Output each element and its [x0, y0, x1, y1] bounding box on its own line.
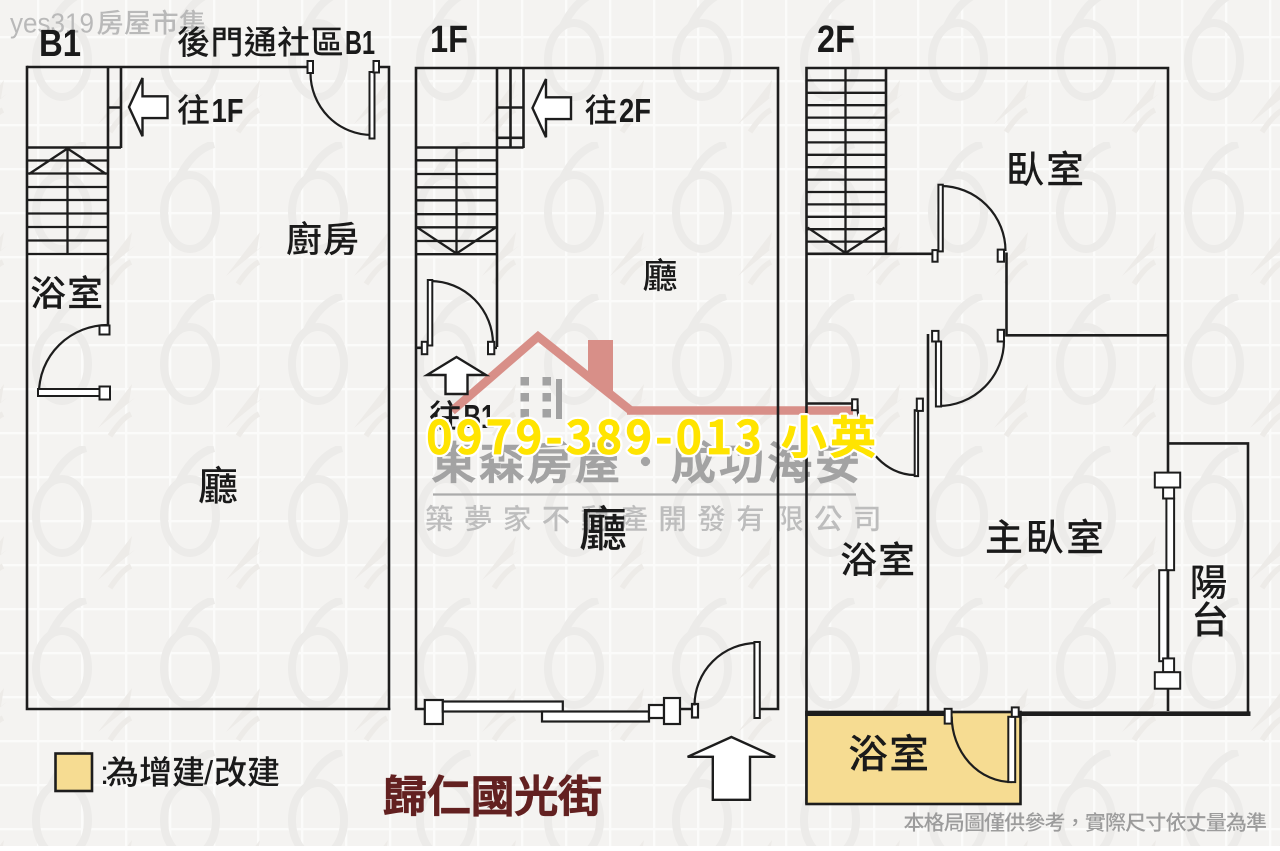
svg-text:1F: 1F — [212, 92, 244, 129]
svg-text:/: / — [204, 754, 214, 791]
svg-text::: : — [100, 754, 109, 791]
svg-text:2F: 2F — [619, 92, 651, 129]
svg-text:B1: B1 — [39, 23, 81, 65]
svg-text:1F: 1F — [430, 19, 468, 61]
svg-text:2F: 2F — [817, 19, 855, 61]
svg-text:B1: B1 — [345, 24, 375, 61]
